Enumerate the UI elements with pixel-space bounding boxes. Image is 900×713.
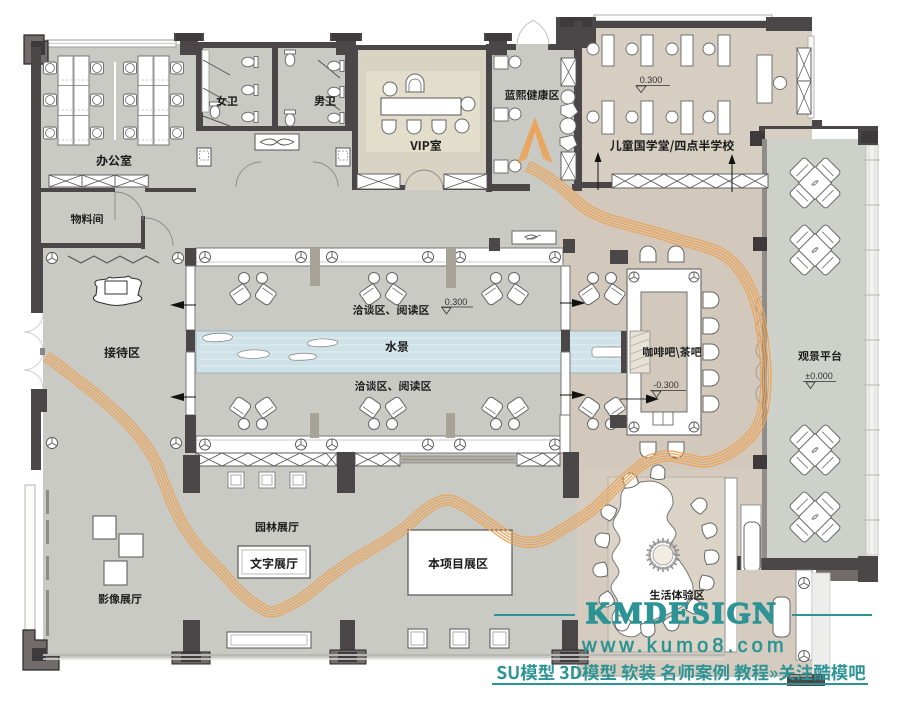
svg-text:0.300: 0.300 xyxy=(445,297,468,307)
svg-text:KMDESIGN: KMDESIGN xyxy=(586,595,777,630)
svg-text:-0.300: -0.300 xyxy=(653,380,679,390)
svg-text:±0.000: ±0.000 xyxy=(805,371,832,381)
svg-text:www.kumo8.com: www.kumo8.com xyxy=(581,635,788,657)
svg-text:0.300: 0.300 xyxy=(640,75,663,85)
